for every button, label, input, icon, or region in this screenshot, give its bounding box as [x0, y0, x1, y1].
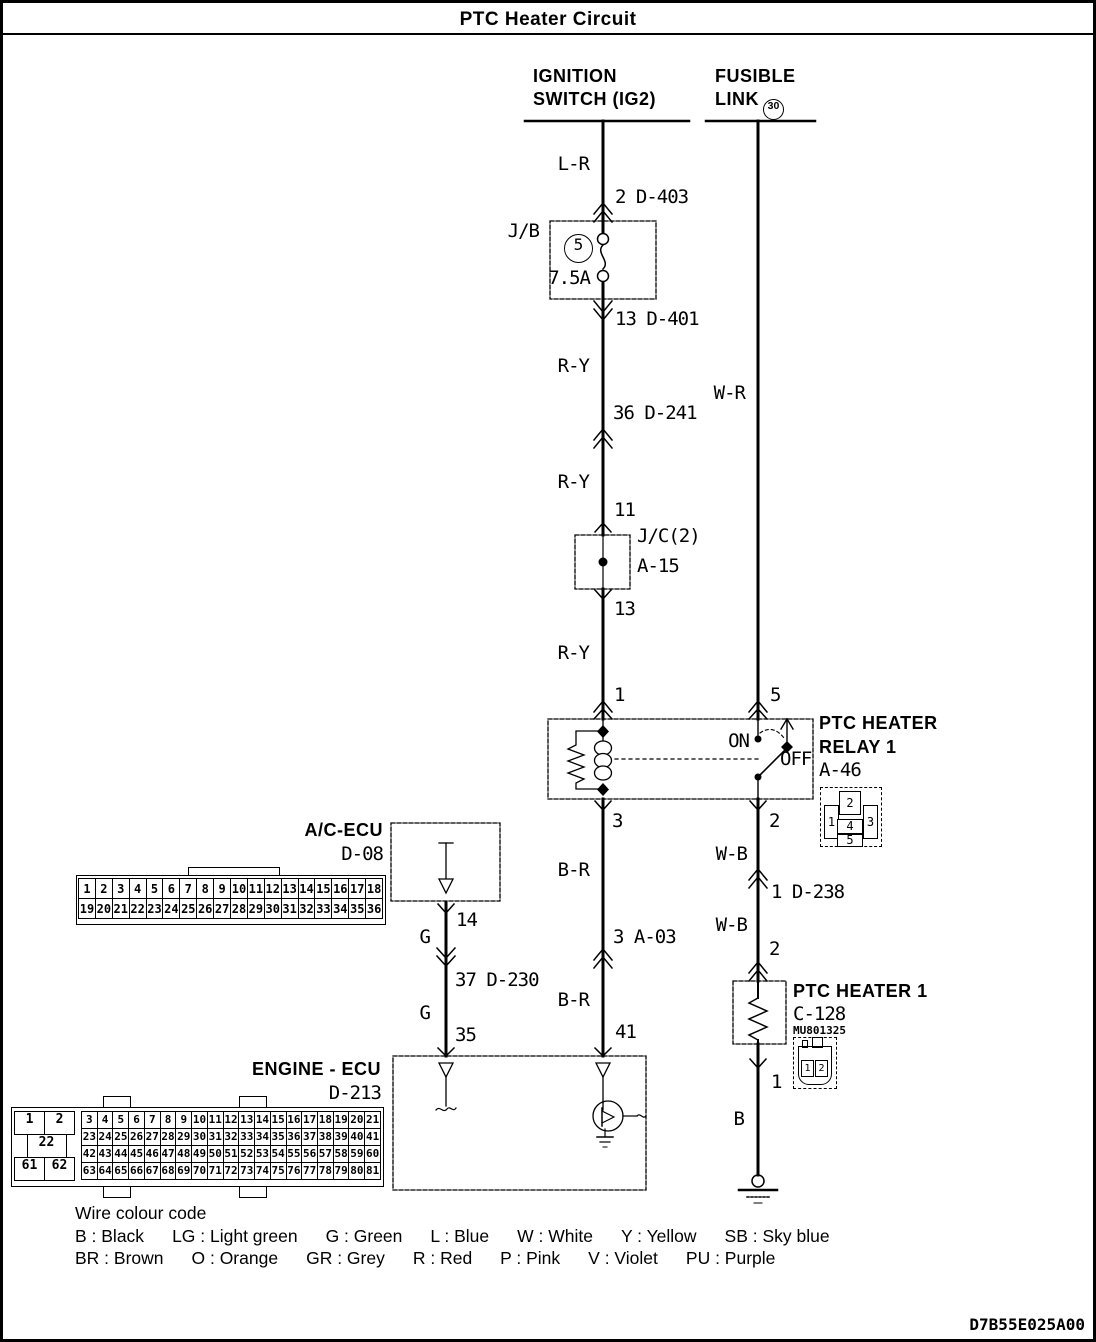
list-item: R : Red [413, 1248, 472, 1269]
ground-symbol [739, 1175, 777, 1203]
list-item: 72 [223, 1162, 240, 1180]
list-item: 47 [160, 1145, 177, 1163]
list-item: 5 [112, 1111, 129, 1129]
pin-label-13: 13 [614, 600, 635, 619]
list-item: 17 [301, 1111, 318, 1129]
list-item: 59 [348, 1145, 365, 1163]
list-item: 64 [97, 1162, 114, 1180]
list-item: 22 [129, 898, 147, 919]
list-item: 77 [301, 1162, 318, 1180]
legend-heading: Wire colour code [75, 1203, 206, 1224]
list-item: 34 [254, 1128, 271, 1146]
jb-label: J/B [508, 222, 539, 241]
wire-label-g1: G [420, 928, 430, 947]
list-item: 8 [196, 878, 214, 899]
relay-pin-2: 2 [839, 791, 861, 815]
list-item: 29 [175, 1128, 192, 1146]
list-item: 38 [317, 1128, 334, 1146]
fusible-link-label-2: LINK30 [715, 90, 784, 120]
list-item: 3 [112, 878, 130, 899]
list-item: 63 [81, 1162, 98, 1180]
list-item: 40 [348, 1128, 365, 1146]
legend-row-2: BR : BrownO : OrangeGR : GreyR : RedP : … [75, 1248, 803, 1269]
list-item: 26 [196, 898, 214, 919]
document-code: D7B55E025A00 [969, 1315, 1085, 1334]
list-item: 80 [348, 1162, 365, 1180]
list-item: 13 [238, 1111, 255, 1129]
list-item: L : Blue [430, 1226, 489, 1247]
wire-label-ry3: R-Y [558, 644, 589, 663]
list-item: 30 [264, 898, 282, 919]
list-item: 32 [298, 898, 316, 919]
list-item: 5 [146, 878, 164, 899]
ptc-pin-2: 2 [815, 1060, 828, 1077]
list-item: 9 [213, 878, 231, 899]
wire-label-br1: B-R [558, 861, 589, 880]
list-item: 18 [317, 1111, 334, 1129]
pin-cell: 1 [14, 1111, 45, 1135]
list-item: 36 [286, 1128, 303, 1146]
pin-label-41: 41 [615, 1023, 636, 1042]
connector-label-d401: 13 D-401 [615, 310, 699, 329]
list-item: 41 [364, 1128, 381, 1146]
list-item: 20 [95, 898, 113, 919]
list-item: 69 [175, 1162, 192, 1180]
pin-label-2: 2 [769, 812, 779, 831]
ac-connector-row-1: 123456789101112131415161718 [79, 878, 383, 899]
wiring-diagram-page: PTC Heater Circuit [0, 0, 1096, 1342]
engine-ecu-connector: 1 2 22 61 62 345678910111213141516171819… [11, 1107, 384, 1187]
list-item: 14 [254, 1111, 271, 1129]
list-item: B : Black [75, 1226, 144, 1247]
pin-cell: 62 [44, 1157, 75, 1181]
list-item: 30 [191, 1128, 208, 1146]
wire-label-ry1: R-Y [558, 357, 589, 376]
ac-connector-row-2: 192021222324252627282930313233343536 [79, 898, 383, 919]
wire-label-wb1: W-B [716, 845, 747, 864]
list-item: 27 [144, 1128, 161, 1146]
list-item: 55 [286, 1145, 303, 1163]
pin-label-5: 5 [770, 686, 780, 705]
list-item: 54 [270, 1145, 287, 1163]
connector-label-d238: 1 D-238 [771, 883, 844, 902]
list-item: 43 [97, 1145, 114, 1163]
list-item: 24 [162, 898, 180, 919]
engine-connector-left-block: 1 2 22 61 62 [15, 1111, 79, 1180]
relay-pin-3: 3 [863, 805, 878, 839]
ac-ecu-id: D-08 [341, 845, 383, 864]
list-item: 46 [144, 1145, 161, 1163]
list-item: 21 [364, 1111, 381, 1129]
relay-internals [568, 719, 793, 799]
pin-label-1: 1 [614, 686, 624, 705]
ac-ecu-connector: 123456789101112131415161718 192021222324… [76, 875, 386, 925]
list-item: 48 [175, 1145, 192, 1163]
list-item: 52 [238, 1145, 255, 1163]
list-item: 45 [128, 1145, 145, 1163]
engine-connector-row-4: 63646566676869707172737475767778798081 [82, 1162, 381, 1180]
list-item: 26 [128, 1128, 145, 1146]
list-item: PU : Purple [686, 1248, 775, 1269]
list-item: G : Green [326, 1226, 403, 1247]
list-item: O : Orange [192, 1248, 279, 1269]
list-item: 8 [160, 1111, 177, 1129]
list-item: 7 [144, 1111, 161, 1129]
list-item: 28 [160, 1128, 177, 1146]
wire-label-b: B [734, 1110, 744, 1129]
list-item: 23 [81, 1128, 98, 1146]
pin-label-1b: 1 [771, 1073, 781, 1092]
list-item: 42 [81, 1145, 98, 1163]
list-item: 23 [146, 898, 164, 919]
pin-cell: 61 [14, 1157, 45, 1181]
list-item: 24 [97, 1128, 114, 1146]
list-item: 29 [247, 898, 265, 919]
connector-label-d403: 2 D-403 [615, 188, 688, 207]
engine-ecu-name: ENGINE - ECU [252, 1060, 381, 1078]
list-item: 56 [301, 1145, 318, 1163]
list-item: 28 [230, 898, 248, 919]
list-item: 16 [286, 1111, 303, 1129]
list-item: 71 [207, 1162, 224, 1180]
wire-label-br2: B-R [558, 991, 589, 1010]
list-item: 34 [331, 898, 349, 919]
list-item: 2 [95, 878, 113, 899]
list-item: 25 [179, 898, 197, 919]
list-item: 13 [281, 878, 299, 899]
ignition-switch-label-1: IGNITION [533, 67, 617, 85]
list-item: 60 [364, 1145, 381, 1163]
list-item: 10 [230, 878, 248, 899]
list-item: GR : Grey [306, 1248, 385, 1269]
list-item: 74 [254, 1162, 271, 1180]
fuse-symbol [598, 234, 609, 282]
list-item: 31 [207, 1128, 224, 1146]
wire-label-g2: G [420, 1004, 430, 1023]
list-item: 33 [238, 1128, 255, 1146]
list-item: 36 [365, 898, 383, 919]
list-item: LG : Light green [172, 1226, 298, 1247]
list-item: 78 [317, 1162, 334, 1180]
connector-label-a03: 3 A-03 [613, 928, 676, 947]
list-item: 21 [112, 898, 130, 919]
list-item: 31 [281, 898, 299, 919]
engine-ecu-id: D-213 [329, 1084, 381, 1103]
junction-id: A-15 [637, 557, 679, 576]
relay-name-2: RELAY 1 [819, 738, 897, 756]
list-item: 33 [314, 898, 332, 919]
wire-label-lr: L-R [558, 155, 589, 174]
list-item: 7 [179, 878, 197, 899]
list-item: 6 [128, 1111, 145, 1129]
pin-label-14: 14 [456, 911, 477, 930]
ignition-switch-label-2: SWITCH (IG2) [533, 90, 656, 108]
list-item: 3 [81, 1111, 98, 1129]
list-item: 49 [191, 1145, 208, 1163]
relay-pin-5: 5 [837, 834, 863, 847]
list-item: 70 [191, 1162, 208, 1180]
connector-label-d241: 36 D-241 [613, 404, 697, 423]
list-item: V : Violet [588, 1248, 658, 1269]
relay-off-label: OFF [780, 750, 811, 769]
list-item: 17 [348, 878, 366, 899]
list-item: 4 [129, 878, 147, 899]
list-item: 19 [333, 1111, 350, 1129]
wire-label-wr: W-R [714, 384, 745, 403]
list-item: 79 [333, 1162, 350, 1180]
ptc-pin-1: 1 [801, 1060, 814, 1077]
pin-label-2b: 2 [769, 940, 779, 959]
ptc-heater-id: C-128 [793, 1005, 845, 1024]
list-item: 1 [78, 878, 96, 899]
pin-cell: 22 [27, 1134, 67, 1158]
list-item: 20 [348, 1111, 365, 1129]
wire-label-wb2: W-B [716, 916, 747, 935]
engine-connector-row-2: 23242526272829303132333435363738394041 [82, 1128, 381, 1146]
list-item: 68 [160, 1162, 177, 1180]
pin-cell: 2 [44, 1111, 75, 1135]
jb-fuse-number: 5 [564, 234, 593, 263]
list-item: 81 [364, 1162, 381, 1180]
list-item: SB : Sky blue [725, 1226, 830, 1247]
list-item: 44 [112, 1145, 129, 1163]
list-item: 37 [301, 1128, 318, 1146]
list-item: 9 [175, 1111, 192, 1129]
fusible-link-label-1: FUSIBLE [715, 67, 796, 85]
list-item: W : White [517, 1226, 593, 1247]
jb-fuse-rating: 7.5A [548, 269, 590, 288]
ac-ecu-name: A/C-ECU [305, 821, 384, 839]
list-item: 73 [238, 1162, 255, 1180]
list-item: 4 [97, 1111, 114, 1129]
list-item: 16 [331, 878, 349, 899]
fusible-link-number: 30 [763, 99, 784, 120]
engine-connector-row-1: 3456789101112131415161718192021 [82, 1111, 381, 1129]
list-item: 15 [270, 1111, 287, 1129]
pin-label-3: 3 [612, 812, 622, 831]
fusible-link-word: LINK [715, 89, 759, 109]
engine-ecu-symbols [436, 1063, 646, 1147]
list-item: 10 [191, 1111, 208, 1129]
list-item: 67 [144, 1162, 161, 1180]
ptc-heater-name: PTC HEATER 1 [793, 982, 928, 1000]
list-item: 65 [112, 1162, 129, 1180]
list-item: 27 [213, 898, 231, 919]
legend-row-1: B : BlackLG : Light greenG : GreenL : Bl… [75, 1226, 858, 1247]
wire-label-ry2: R-Y [558, 473, 589, 492]
list-item: 6 [162, 878, 180, 899]
relay-name-1: PTC HEATER [819, 714, 938, 732]
list-item: 32 [223, 1128, 240, 1146]
relay-id: A-46 [819, 761, 861, 780]
ac-ecu-symbol [439, 843, 453, 893]
list-item: P : Pink [500, 1248, 560, 1269]
pin-label-11: 11 [614, 501, 635, 520]
list-item: 51 [223, 1145, 240, 1163]
list-item: 11 [247, 878, 265, 899]
pin-label-35: 35 [455, 1026, 476, 1045]
connector-label-d230: 37 D-230 [455, 971, 539, 990]
engine-connector-row-3: 42434445464748495051525354555657585960 [82, 1145, 381, 1163]
list-item: 15 [314, 878, 332, 899]
list-item: 12 [223, 1111, 240, 1129]
list-item: 39 [333, 1128, 350, 1146]
relay-pin-4: 4 [837, 819, 863, 834]
list-item: 66 [128, 1162, 145, 1180]
ptc-heater-resistor [749, 981, 767, 1044]
list-item: 18 [365, 878, 383, 899]
list-item: 19 [78, 898, 96, 919]
list-item: 25 [112, 1128, 129, 1146]
list-item: 58 [333, 1145, 350, 1163]
list-item: 76 [286, 1162, 303, 1180]
relay-on-label: ON [728, 732, 749, 751]
junction-symbol [599, 535, 607, 589]
list-item: 14 [298, 878, 316, 899]
list-item: 35 [270, 1128, 287, 1146]
list-item: 53 [254, 1145, 271, 1163]
ptc-heater-part-no: MU801325 [793, 1025, 846, 1036]
list-item: 57 [317, 1145, 334, 1163]
list-item: BR : Brown [75, 1248, 164, 1269]
list-item: 75 [270, 1162, 287, 1180]
junction-name: J/C(2) [637, 527, 700, 546]
list-item: 50 [207, 1145, 224, 1163]
list-item: 35 [348, 898, 366, 919]
list-item: 12 [264, 878, 282, 899]
list-item: Y : Yellow [621, 1226, 697, 1247]
engine-connector-right-block: 3456789101112131415161718192021 23242526… [82, 1111, 381, 1179]
list-item: 11 [207, 1111, 224, 1129]
